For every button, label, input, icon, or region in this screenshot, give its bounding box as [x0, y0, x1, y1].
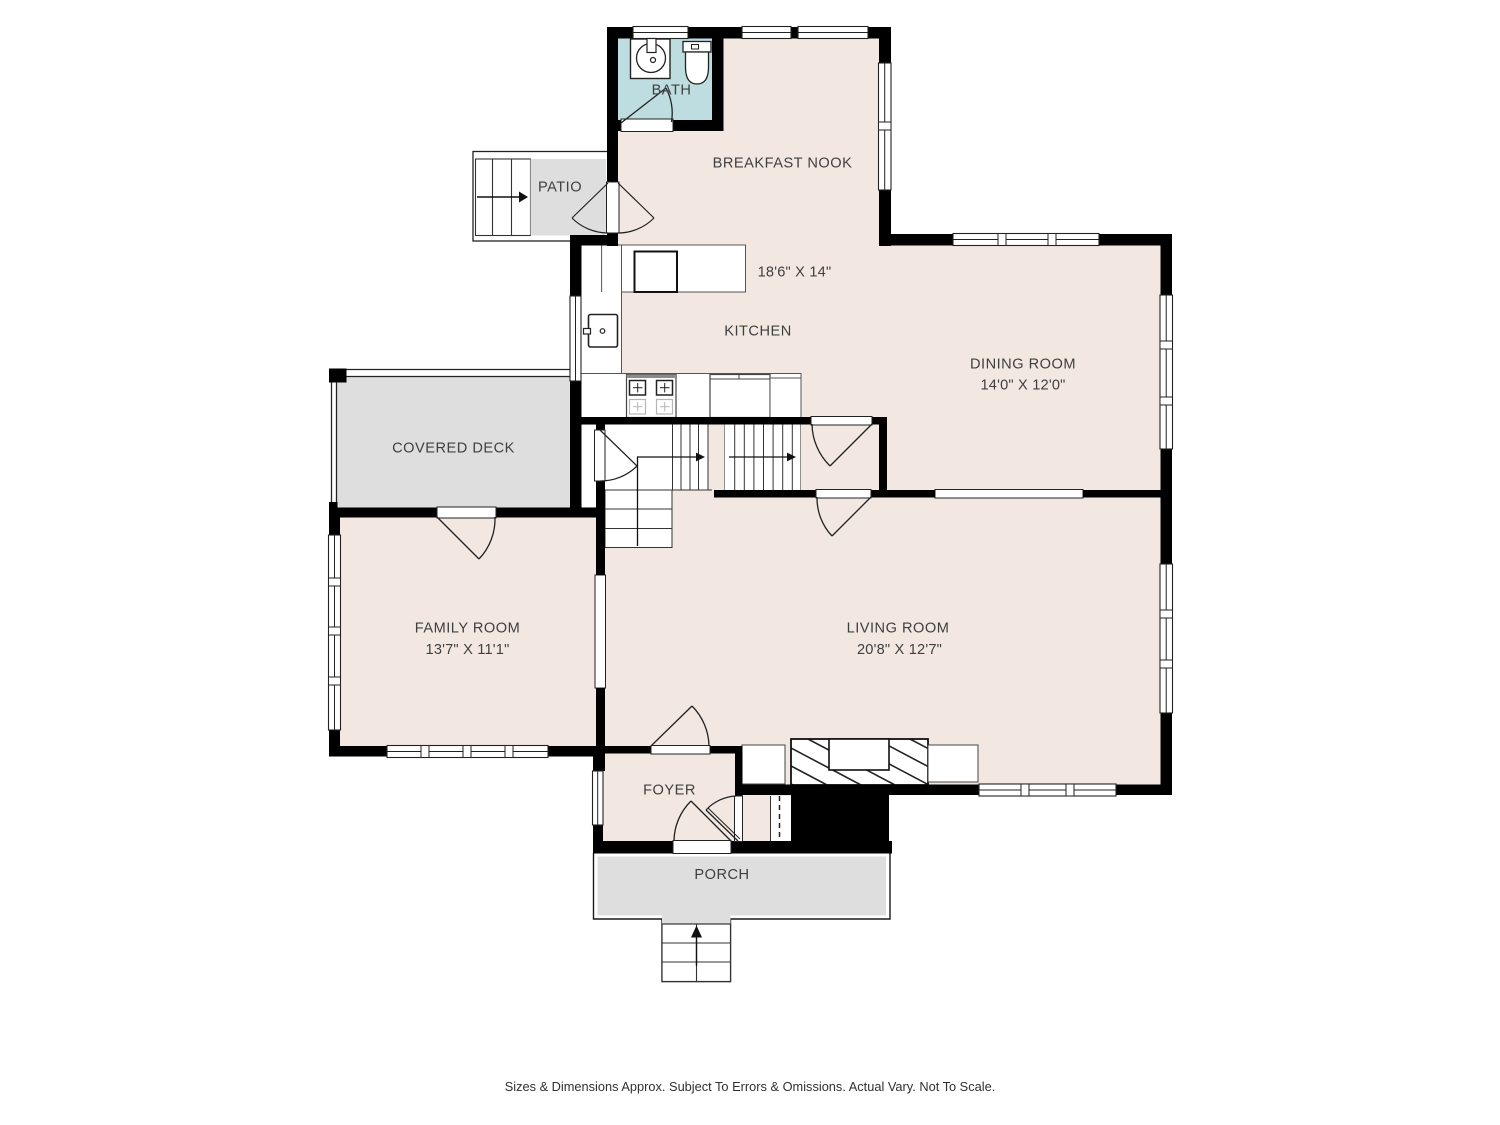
- svg-text:FAMILY ROOM: FAMILY ROOM: [415, 621, 521, 637]
- svg-text:20'8" X 12'7": 20'8" X 12'7": [857, 642, 942, 658]
- svg-text:18'6" X 14": 18'6" X 14": [758, 265, 832, 281]
- svg-text:KITCHEN: KITCHEN: [724, 324, 792, 340]
- svg-text:DINING ROOM: DINING ROOM: [970, 357, 1076, 373]
- svg-text:Sizes & Dimensions Approx. Sub: Sizes & Dimensions Approx. Subject To Er…: [505, 1079, 996, 1094]
- svg-text:PORCH: PORCH: [694, 867, 749, 883]
- svg-text:13'7" X 11'1": 13'7" X 11'1": [426, 642, 510, 658]
- svg-text:COVERED DECK: COVERED DECK: [392, 441, 515, 457]
- svg-text:LIVING ROOM: LIVING ROOM: [847, 621, 950, 637]
- svg-text:BATH: BATH: [652, 83, 692, 99]
- svg-text:FOYER: FOYER: [643, 783, 696, 799]
- svg-text:PATIO: PATIO: [538, 180, 582, 196]
- svg-text:BREAKFAST NOOK: BREAKFAST NOOK: [713, 156, 853, 172]
- svg-text:14'0" X 12'0": 14'0" X 12'0": [980, 378, 1065, 394]
